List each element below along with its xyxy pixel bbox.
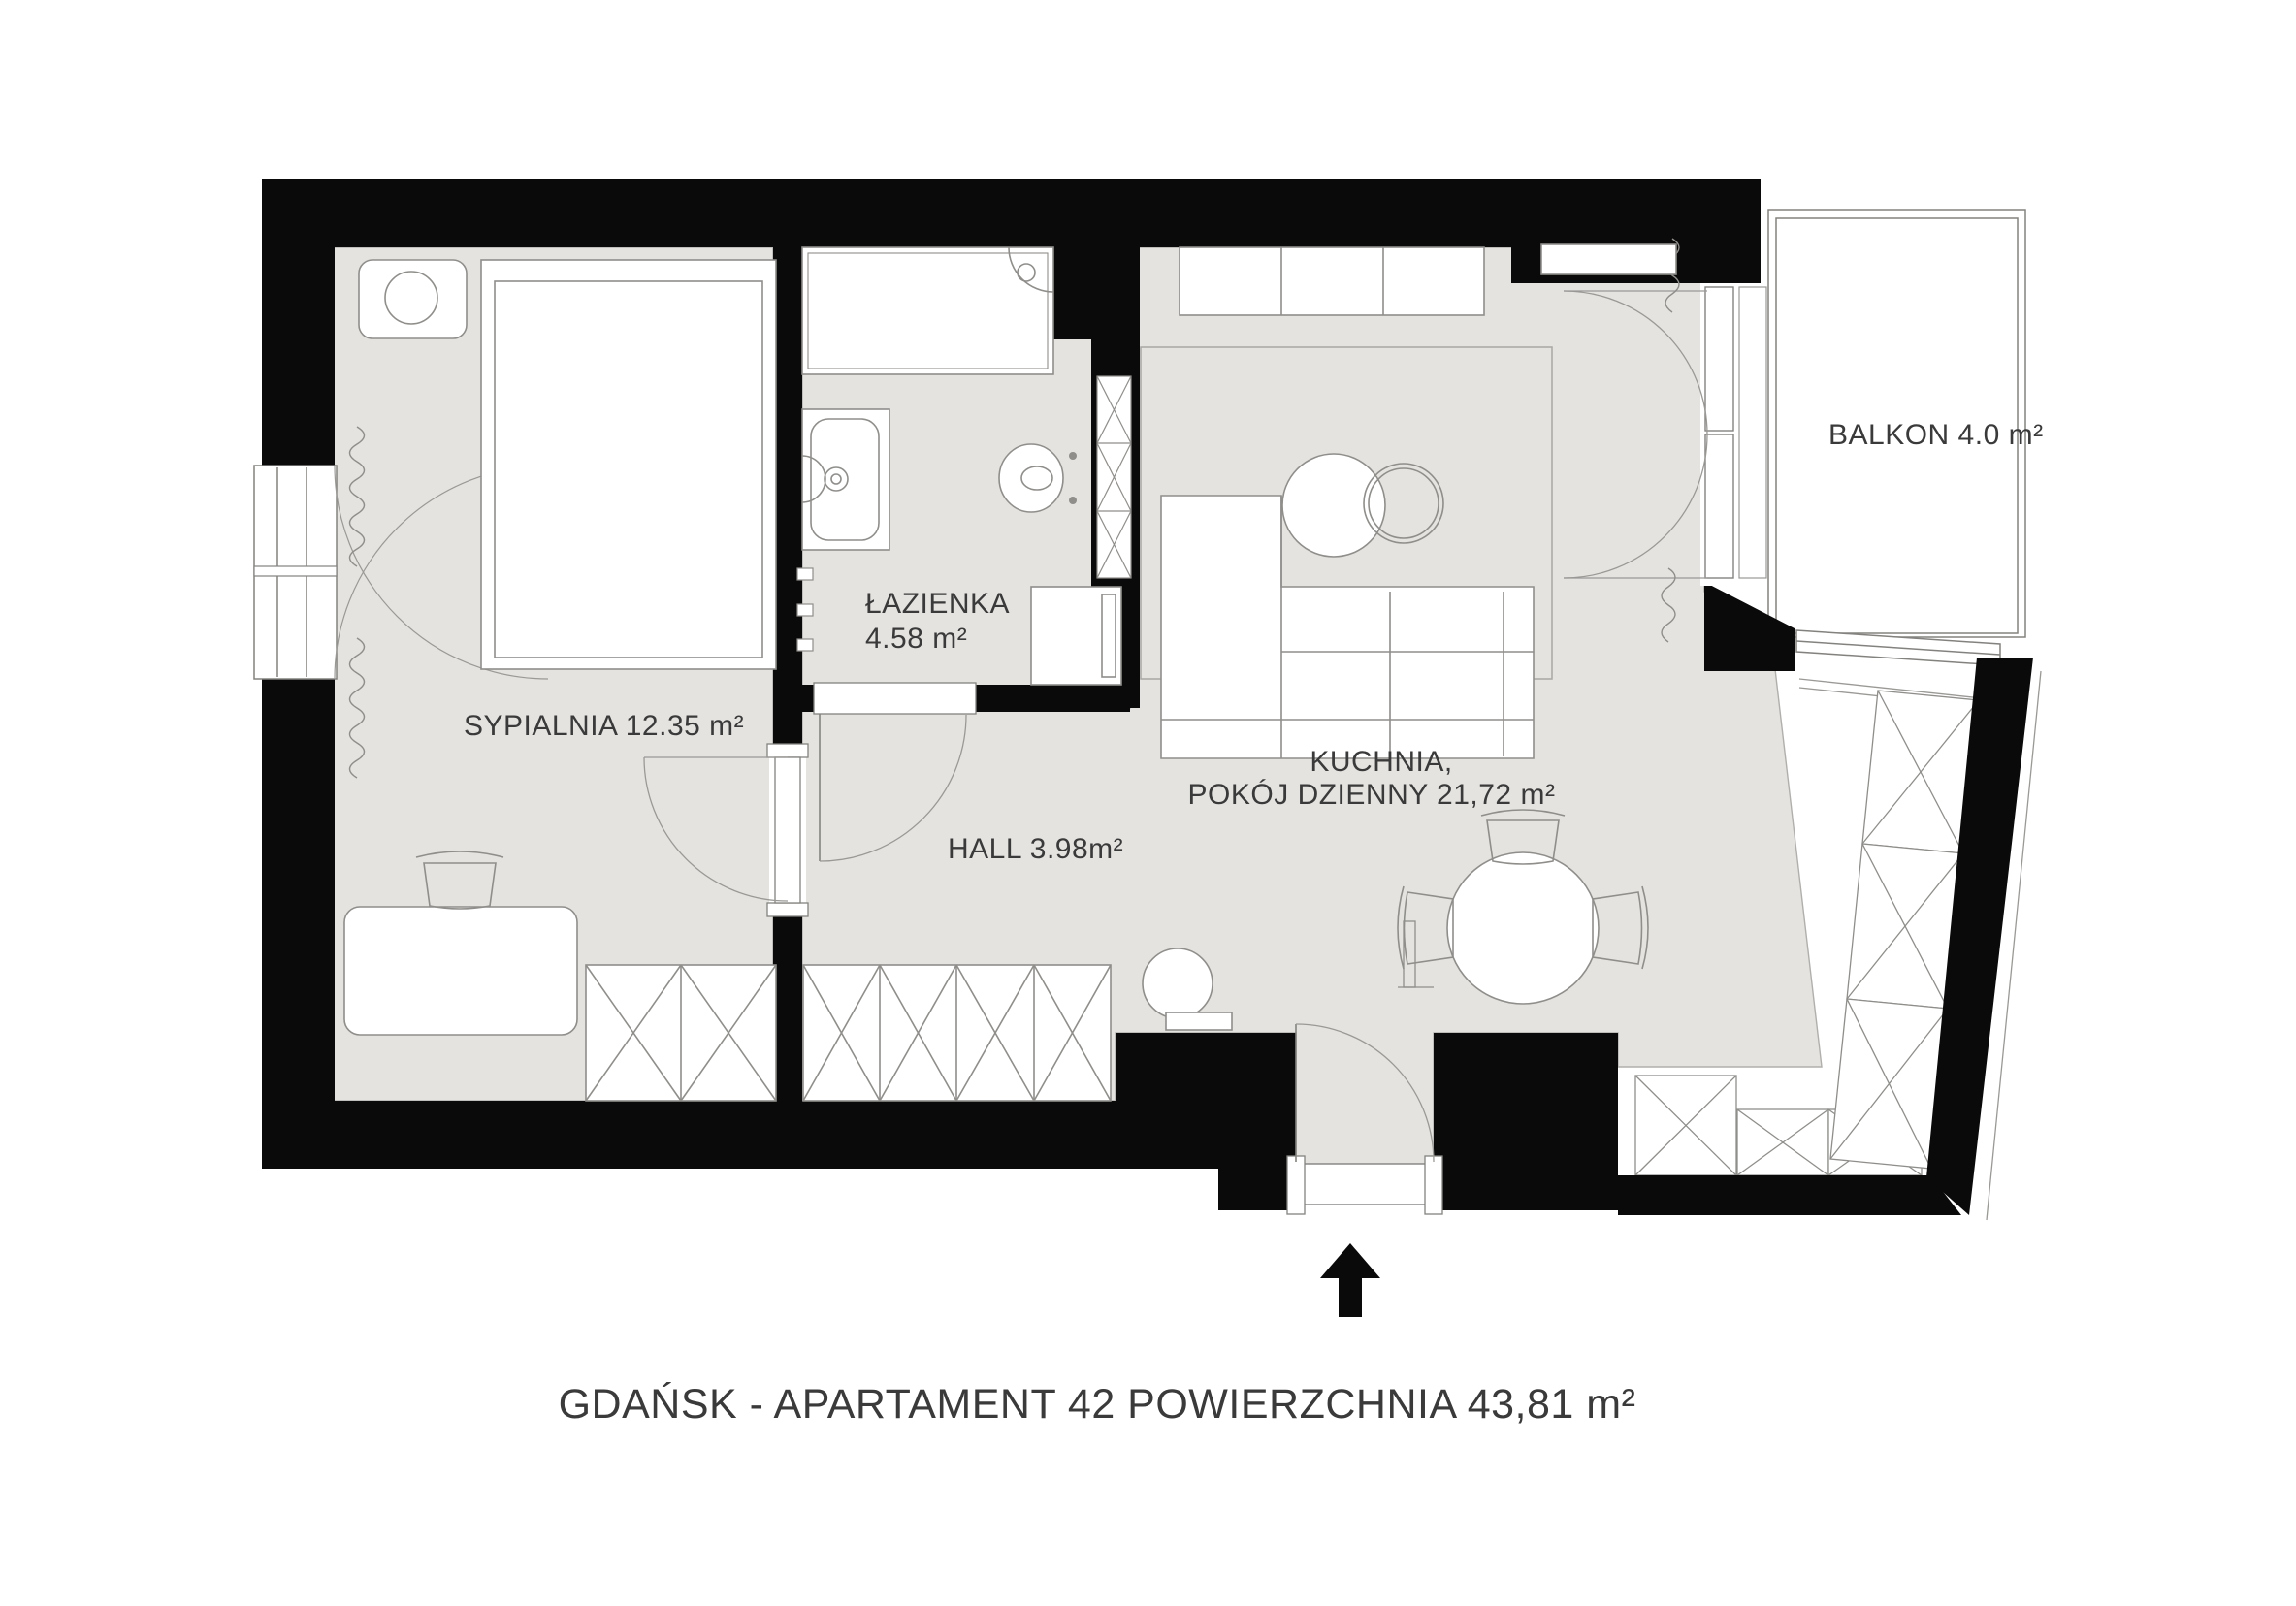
wall-bottom-left [262,1101,1218,1169]
floor-plan-drawing: SYPIALNIA 12.35 m² ŁAZIENKA 4.58 m² HALL… [0,0,2296,1606]
hall-wardrobe [803,965,1111,1101]
plan-title: GDAŃSK - APARTAMENT 42 POWIERZCHNIA 43,8… [559,1381,1636,1428]
bathroom-label-area: 4.58 m² [865,623,967,655]
bathtub-washbasin [802,409,889,550]
bedroom-wardrobe [586,965,776,1101]
kitchen-living-label-area: POKÓJ DZIENNY 21,72 m² [1188,779,1556,811]
hall-label: HALL 3.98m² [948,833,1123,865]
nightstand-lamp [385,272,437,324]
utility-shaft [1097,376,1131,578]
bed [481,260,776,669]
cabinet-by-balcony-door [1541,244,1676,274]
wall-left-lower [262,679,335,1169]
wall-bottom-right [1618,1175,1961,1215]
dining-table [1447,852,1599,1004]
kitchen-living-label-name: KUCHNIA, [1310,746,1452,778]
entrance-arrow-icon [1320,1243,1380,1317]
wall-bedroom-upper [773,247,802,752]
tv-sideboard [1180,247,1484,315]
bathroom-label-name: ŁAZIENKA [865,588,1010,620]
wall-balcony-wedge [1704,582,1795,671]
wall-bathroom-living-top [1053,179,1140,339]
balcony-label: BALKON 4.0 m² [1828,419,2044,451]
bedroom-label: SYPIALNIA 12.35 m² [464,710,744,742]
wall-top [262,179,1704,247]
kitchen-cabinet-box [1737,1109,1828,1175]
wall-bedroom-lower [773,909,802,1101]
desk [344,907,577,1035]
kitchen-cabinet-box [1635,1076,1736,1175]
shower [802,247,1053,374]
entry-pouf [1143,948,1213,1018]
wall-left-upper [262,179,335,466]
entry-shoe-bench [1166,1012,1232,1030]
washing-machine [1031,587,1121,685]
wall-entrance-right [1434,1033,1618,1210]
coffee-table-large [1282,454,1385,557]
floor-plan-page: SYPIALNIA 12.35 m² ŁAZIENKA 4.58 m² HALL… [0,0,2296,1606]
